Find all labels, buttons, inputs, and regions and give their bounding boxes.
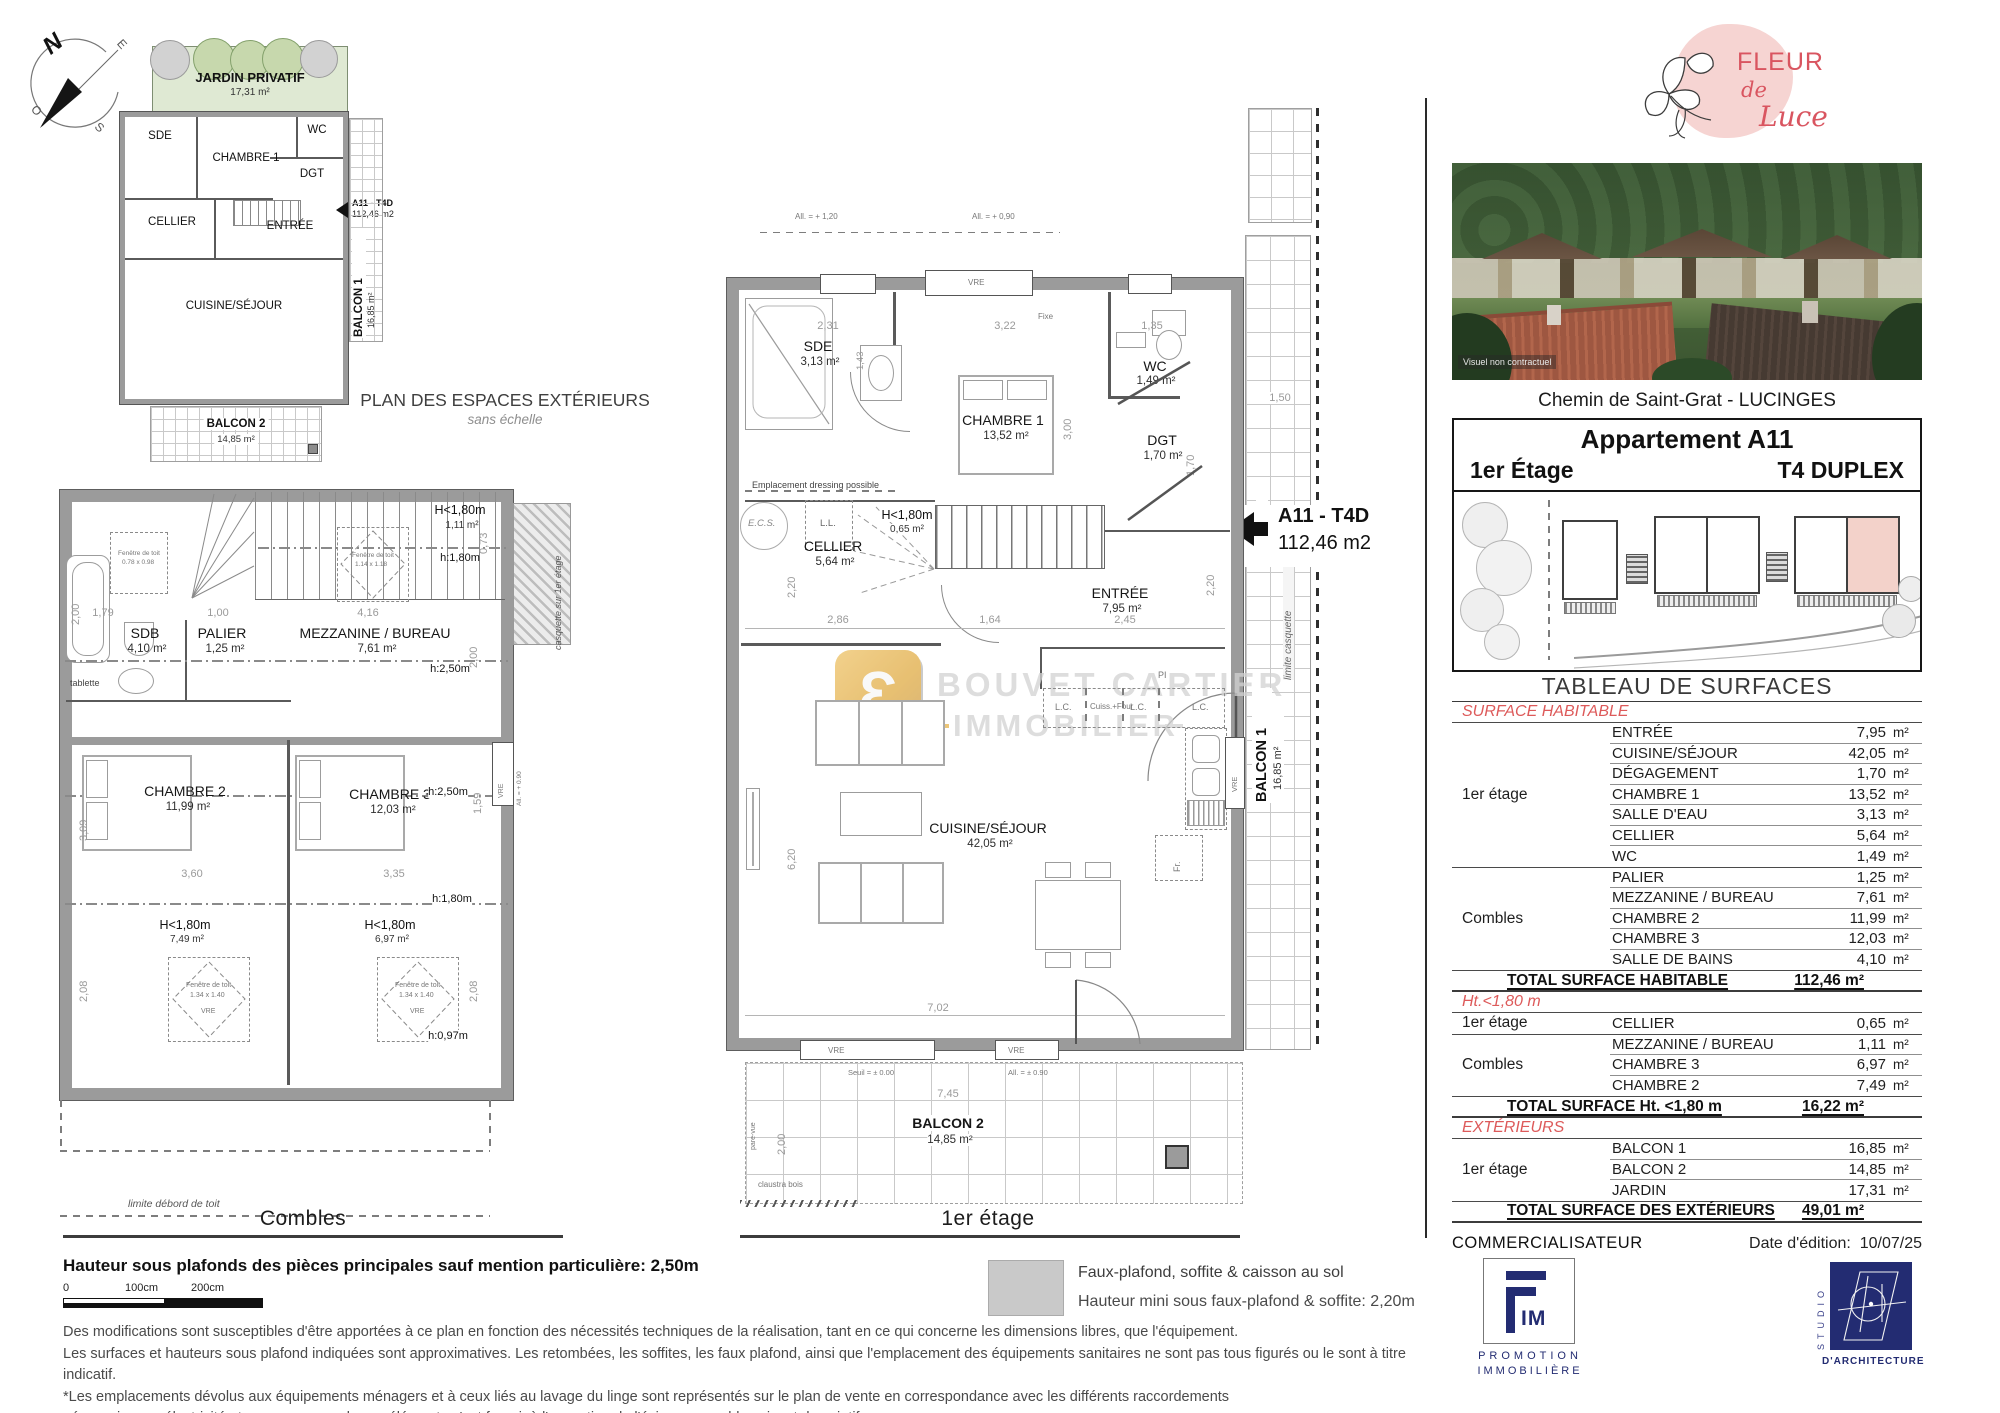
tree-icon [1484,624,1520,660]
dim: 4,16 [357,607,378,619]
room-sde-area: 3,13 m² [801,356,840,368]
table-floor-group: 1er étageENTRÉE7,95m²CUISINE/SÉJOUR42,05… [1452,723,1922,867]
window [820,274,876,294]
dim: 0,73 [478,510,490,554]
tree-icon [1882,604,1916,638]
allege-label: All. = + 1,20 [795,212,838,221]
scale-bar: 0 100cm 200cm [63,1282,283,1312]
casquette-label: casquette sur 1er étage [553,530,563,650]
footer-height-note: Hauteur sous plafonds des pièces princip… [63,1256,699,1276]
lc-label: L.C. [1055,702,1072,712]
balcon2-label: BALCON 2 [204,418,269,430]
surface-row: CUISINE/SÉJOUR42,05m² [1610,744,1922,765]
table-section-header: Ht.<1,80 m [1452,992,1922,1013]
fim-immobiliere-label: IMMOBILIÈRE [1475,1365,1585,1377]
project-address: Chemin de Saint-Grat - LUCINGES [1538,390,1836,412]
studio-logo: STUDIO D'ARCHITECTURE [1808,1258,1928,1408]
surface-row: CHAMBRE 211,99m² [1610,909,1922,930]
legend-line2: Hauteur mini sous faux-plafond & soffite… [1078,1293,1415,1311]
balcon1-label: BALCON 1 [352,228,366,338]
dim: 2,20 [1205,548,1217,596]
site-plan [1452,492,1922,672]
lc-label: L.C. [1130,702,1147,712]
surface-total-row: TOTAL SURFACE DES EXTÉRIEURS49,01 m² [1452,1201,1922,1223]
surface-row: CHAMBRE 36,97m² [1610,1055,1922,1076]
panel-divider [1425,98,1427,1238]
floor-group-label: Combles [1452,1035,1610,1097]
coffee-table [840,792,922,836]
surface-row: BALCON 116,85m² [1610,1139,1922,1160]
surface-row: JARDIN17,31m² [1610,1180,1922,1201]
claustra-label: claustra bois [758,1180,803,1189]
surface-row: CHAMBRE 113,52m² [1610,785,1922,806]
ll-label: L.L. [820,518,836,529]
height-line-label: h:1,80m [432,893,472,905]
room-cuisine-area: 42,05 m² [967,838,1012,850]
vre-label: VRE [201,1008,215,1015]
door [1118,460,1208,530]
commercialisateur-label: COMMERCIALISATEUR [1452,1234,1643,1253]
dim: 3,09 [78,785,90,841]
height-line-label: h:2,50m [428,786,468,798]
balcon1-area: 16,85 m² [366,238,376,328]
fim-im-text: IM [1521,1307,1546,1331]
dim: 1,35 [1141,320,1162,332]
balcon1-label: BALCON 1 [1252,688,1272,803]
site-unit-highlight [1848,518,1898,592]
chair [1085,952,1111,968]
cuiss-label: Cuiss.+Four [1090,702,1133,711]
fim-mark-icon [1506,1271,1546,1280]
legend-swatch [988,1260,1064,1316]
balcony-door [1068,972,1146,1050]
room-entree: ENTRÉE [267,220,314,232]
table-floor-group: 1er étageBALCON 116,85m²BALCON 214,85m²J… [1452,1139,1922,1201]
balcon2-area [745,1062,1243,1204]
roof-window-label: Fenêtre de toit [186,982,231,989]
h180-label: H<1,80m [159,918,210,932]
tree-icon [150,40,190,80]
dim: 3,35 [383,868,404,880]
surface-row: SALLE D'EAU3,13m² [1610,805,1922,826]
sofa [818,862,944,924]
edition-date: Date d'édition: 10/07/25 [1650,1235,1922,1253]
surface-row: CHAMBRE 312,03m² [1610,929,1922,950]
edition-date-value: 10/07/25 [1860,1235,1922,1252]
room-mezzanine-area: 7,61 m² [358,643,397,655]
room-cuisine: CUISINE/SÉJOUR [186,300,283,312]
brand-word-de: de [1741,78,1767,102]
room-cellier: CELLIER [148,216,196,228]
roof-window-size: 1.14 x 1.18 [355,561,387,568]
door [1112,352,1202,412]
surface-row: DÉGAGEMENT1,70m² [1610,764,1922,785]
vre-label: VRE [1008,1046,1024,1055]
room-chambre3: CHAMBRE 3 [349,786,431,802]
room-chambre3-area: 12,03 m² [370,804,415,816]
scale-0: 0 [63,1282,69,1294]
height-line-label: h:0,97m [428,1030,468,1042]
brand-word-fleur: FLEUR [1737,48,1824,77]
chair [1045,862,1071,878]
dim: 2,08 [468,948,480,1002]
h180-area: 7,49 m² [170,934,204,945]
balcon2-area: 14,85 m² [214,434,258,445]
room-chambre1: CHAMBRE 1 [960,412,1046,428]
surface-row: CELLIER5,64m² [1610,826,1922,847]
vre-label: VRE [1230,752,1239,792]
surface-row: SALLE DE BAINS4,10m² [1610,950,1922,971]
combles-caption: Combles [260,1207,346,1231]
table-floor-group: ComblesMEZZANINE / BUREAU1,11m²CHAMBRE 3… [1452,1034,1922,1097]
surface-total-row: TOTAL SURFACE Ht. <1,80 m16,22 m² [1452,1096,1922,1118]
room-dgt: DGT [300,168,324,180]
height-line-label: h:1,80m [440,552,480,564]
washbasin [1116,332,1146,348]
surface-row: MEZZANINE / BUREAU1,11m² [1610,1035,1922,1056]
floor-group-label: 1er étage [1452,1013,1610,1034]
dim: 2,00 [468,618,480,668]
stairs-fan [188,492,258,602]
roof-window-size: 1.34 x 1.40 [399,992,434,999]
floor-group-label: 1er étage [1452,1139,1610,1201]
room-cellier: CELLIER [804,538,862,554]
surface-row: MEZZANINE / BUREAU7,61m² [1610,888,1922,909]
disclaimer-line: Des modifications sont susceptibles d'êt… [63,1322,1423,1344]
window-vre [800,1040,935,1060]
stairs [935,505,1105,569]
wc-bowl [118,668,154,694]
room-mezzanine: MEZZANINE / BUREAU [300,625,451,641]
allege-label: All. = + 0.90 [516,746,523,806]
site-road [1574,610,1922,670]
balcon1-strip [1248,108,1312,223]
roof-window-label: Fenêtre de toit [352,552,394,559]
surface-row: WC1,49m² [1610,846,1922,867]
studio-bottom-label: D'ARCHITECTURE [1822,1356,1922,1367]
brand-word-luce: Luce [1759,100,1828,133]
window [1128,274,1172,294]
exterior-plan: JARDIN PRIVATIF 17,31 m² SDE CHAMBRE 1 W… [0,0,660,470]
room-cuisine: CUISINE/SÉJOUR [929,820,1046,836]
room-cellier-area: 5,64 m² [816,556,855,568]
limite-casquette-label: limite casquette [1283,560,1294,680]
dim: 3,00 [1062,390,1074,440]
project-photo: Visuel non contractuel [1452,163,1922,380]
dim: 1,59 [472,770,484,814]
balcon2-area-label: 14,85 m² [927,1134,972,1146]
surface-row: BALCON 214,85m² [1610,1160,1922,1181]
table-section-header: EXTÉRIEURS [1452,1118,1922,1139]
dim: 1,43 [855,330,866,370]
balcon1-strip [1245,235,1311,1050]
roof-window-size: 0.78 x 0.98 [122,559,154,566]
room-sdb: SDB [131,625,160,641]
room-sdb-area: 4,10 m² [128,643,167,655]
photo-caption: Visuel non contractuel [1458,355,1556,369]
room-palier-area: 1,25 m² [206,643,245,655]
jardin-area-label: 17,31 m² [230,87,269,98]
surface-row: CELLIER0,65m² [1610,1013,1922,1034]
apartment-header: Appartement A11 1er Étage T4 DUPLEX [1452,418,1922,492]
studio-vertical-label: STUDIO [1816,1262,1826,1350]
dim: 1,00 [207,607,228,619]
site-building [1562,520,1618,600]
scale-200: 200cm [191,1282,224,1294]
room-entree: ENTRÉE [1092,585,1149,601]
parevue-label: pare-vue [750,1100,757,1150]
room-chambre2-area: 11,99 m² [166,801,211,813]
dim: 7,45 [937,1088,958,1100]
dim: 2,45 [1114,614,1135,626]
legend: Faux-plafond, soffite & caisson au sol H… [988,1260,1418,1320]
dim: 1,79 [92,607,113,619]
fim-promotion-label: PROMOTION [1475,1350,1585,1362]
dim: 2,00 [70,575,82,625]
table-title-row: TABLEAU DE SURFACES [1452,672,1922,702]
room-palier: PALIER [198,625,247,641]
brand-logo: FLEUR de Luce [1625,8,1865,148]
combles-plan: casquette sur 1er étage Fenêtre de toit … [0,470,680,1260]
fim-logo: IM PROMOTION IMMOBILIÈRE [1483,1258,1603,1408]
dressing-label: Emplacement dressing possible [752,480,879,490]
vre-label: VRE [968,278,984,287]
h180-area: 6,97 m² [375,934,409,945]
exterior-plan-title: PLAN DES ESPACES EXTÉRIEURS [360,390,650,411]
dim: 2,00 [776,1105,788,1155]
dim: 1,50 [1269,392,1290,404]
room-chambre1-area: 13,52 m² [983,430,1028,442]
apartment-type: T4 DUPLEX [1777,457,1904,484]
plan-sheet: N E S O JARDIN PRIVATIF 17,31 m² SDE CHA… [0,0,2000,1413]
ecs-label: E.C.S. [748,518,775,529]
tablette-label: tablette [70,678,100,688]
sofa [815,700,945,766]
legend-line1: Faux-plafond, soffite & caisson au sol [1078,1264,1344,1282]
floor-group-label: 1er étage [1452,723,1610,867]
balcon2-corner-marker [308,444,318,454]
room-chambre1: CHAMBRE 1 [212,152,279,164]
h180-area: 1,11 m² [445,520,478,531]
chair [1085,862,1111,878]
edition-date-label: Date d'édition: [1749,1235,1851,1252]
first-floor-plan: limite casquette 1,50 11,23 A11 - T4D 11… [700,0,1400,1260]
height-line-label: h:2,50m [430,663,470,675]
first-floor-caption: 1er étage [941,1207,1034,1231]
room-chambre2: CHAMBRE 2 [144,783,226,799]
dim: 2,86 [827,614,848,626]
fridge-label: Fr. [1172,848,1182,872]
allege-label: All. = ± 0.90 [1008,1068,1048,1077]
h180-label: H<1,80m [364,918,415,932]
apartment-floor: 1er Étage [1470,457,1574,484]
balcon1-area-label: 16,85 m² [1272,700,1284,790]
surface-row: PALIER1,25m² [1610,868,1922,889]
surface-row: ENTRÉE7,95m² [1610,723,1922,744]
dim: 2,31 [817,320,838,332]
roof-window-label: Fenêtre de toit [395,982,440,989]
vre-label: VRE [828,1046,844,1055]
seuil-label: Seuil = ± 0.00 [848,1068,894,1077]
limite-debord-label: limite débord de toit [128,1198,220,1210]
roof-window-label: Fenêtre de toit [118,550,160,557]
dining-table [1035,880,1121,950]
dim: 6,20 [786,820,798,870]
exterior-plan-subtitle: sans échelle [467,412,542,427]
tree-icon [300,40,338,78]
vre-label: VRE [410,1008,424,1015]
balcon2-label: BALCON 2 [909,1115,987,1131]
scale-100: 100cm [125,1282,158,1294]
dim: 2,20 [786,550,798,598]
surface-total-row: TOTAL SURFACE HABITABLE112,46 m² [1452,970,1922,992]
disclaimer-line: *Les emplacements dévolus aux équipement… [63,1387,1423,1409]
dim: 3,60 [181,868,202,880]
surface-table-body: SURFACE HABITABLE1er étageENTRÉE7,95m²CU… [1452,702,1922,1223]
h180-area: 0,65 m² [890,524,924,535]
allege-label: All. = + 0,90 [972,212,1015,221]
balcony-marker [1165,1145,1189,1169]
table-section-header: SURFACE HABITABLE [1452,702,1922,723]
disclaimer-line: nécessaires en électricité et en eau, au… [63,1408,1423,1413]
tree-icon [1898,576,1922,602]
disclaimer: Des modifications sont susceptibles d'êt… [63,1322,1423,1413]
chair [1045,952,1071,968]
room-sde: SDE [804,338,833,354]
dim: 3,22 [994,320,1015,332]
apartment-title: Appartement A11 [1454,424,1920,455]
roof-window-size: 1.34 x 1.40 [190,992,225,999]
table-floor-group: ComblesPALIER1,25m²MEZZANINE / BUREAU7,6… [1452,867,1922,971]
dim: 1,64 [979,614,1000,626]
room-wc: WC [307,124,326,136]
disclaimer-line: Les surfaces et hauteurs sous plafond in… [63,1344,1423,1387]
h180-label: H<1,80m [881,508,932,522]
unit-area: 112,46 m2 [1278,532,1371,555]
room-sde: SDE [148,130,172,142]
dim: 2,08 [78,948,90,1002]
vre-label: VRE [498,752,505,798]
surface-row: CHAMBRE 27,49m² [1610,1076,1922,1097]
floor-group-label: Combles [1452,868,1610,971]
table-title: TABLEAU DE SURFACES [1542,673,1833,700]
jardin-label: JARDIN PRIVATIF [195,70,304,85]
flower-icon [1627,36,1737,146]
dim: 7,02 [927,1002,948,1014]
unit-ref: A11 - T4D [1278,505,1369,528]
fixe-label: Fixe [1038,312,1053,321]
lc-label: L.C. [1192,702,1209,712]
room-dgt: DGT [1147,432,1177,448]
window-vre [995,1040,1059,1060]
unit-arrow-icon [336,202,348,218]
table-floor-group: 1er étageCELLIER0,65m² [1452,1013,1922,1034]
